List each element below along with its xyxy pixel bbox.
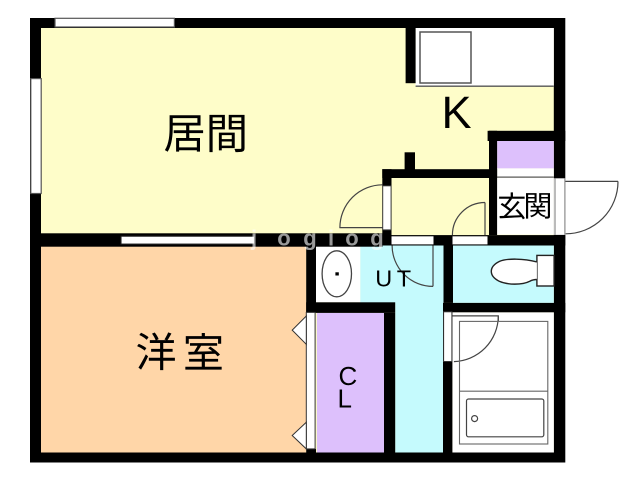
svg-text:o: o [277,226,290,251]
svg-text:K: K [442,87,472,138]
svg-text:j: j [250,226,257,251]
svg-text:L: L [338,384,352,414]
svg-text:g: g [303,226,316,251]
svg-text:U: U [375,266,392,292]
svg-text:T: T [397,266,411,292]
svg-text:i: i [328,226,334,251]
svg-text:g: g [370,226,383,251]
svg-text:o: o [345,226,358,251]
